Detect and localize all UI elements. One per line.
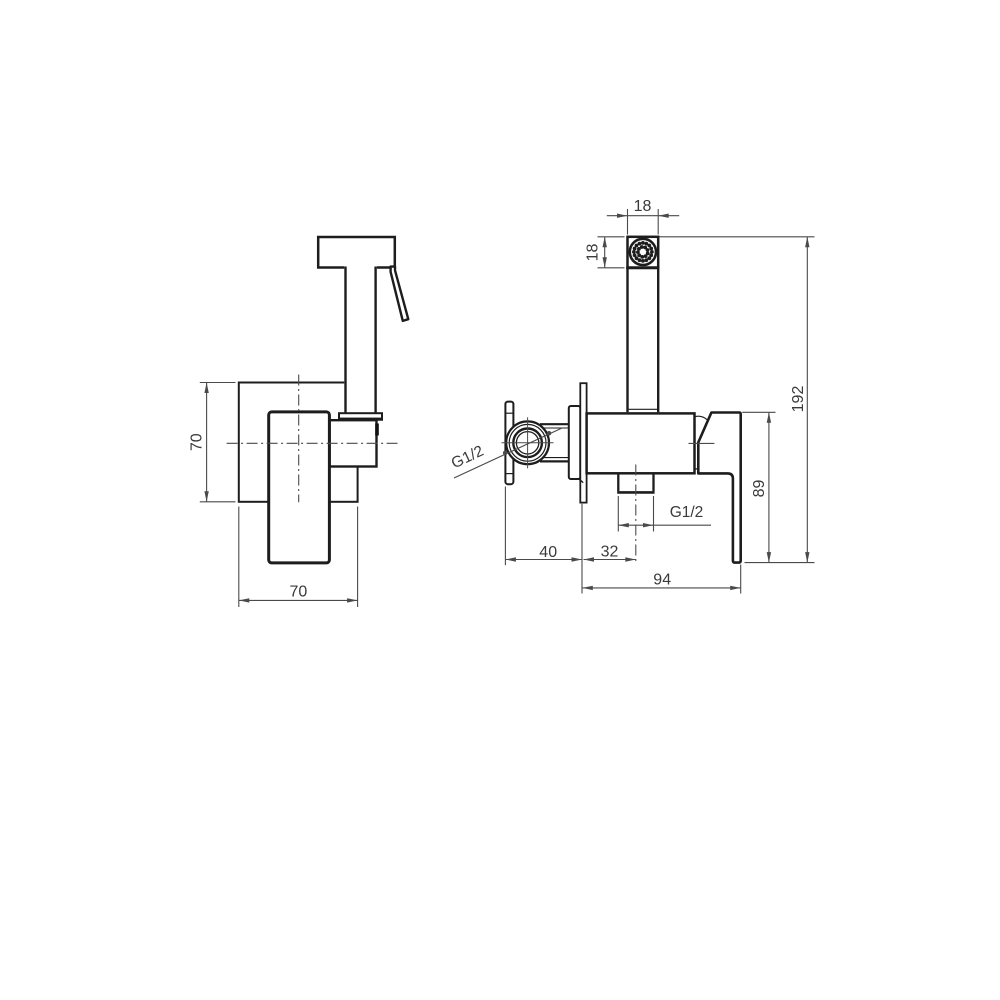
svg-text:32: 32 [601, 543, 619, 560]
svg-text:18: 18 [634, 198, 652, 215]
svg-text:40: 40 [539, 544, 557, 561]
svg-text:70: 70 [290, 583, 308, 600]
svg-text:94: 94 [653, 571, 671, 588]
svg-text:G1/2: G1/2 [670, 504, 704, 521]
svg-text:192: 192 [790, 386, 807, 413]
svg-text:89: 89 [751, 480, 768, 498]
svg-text:18: 18 [585, 244, 602, 262]
svg-text:70: 70 [188, 433, 205, 451]
